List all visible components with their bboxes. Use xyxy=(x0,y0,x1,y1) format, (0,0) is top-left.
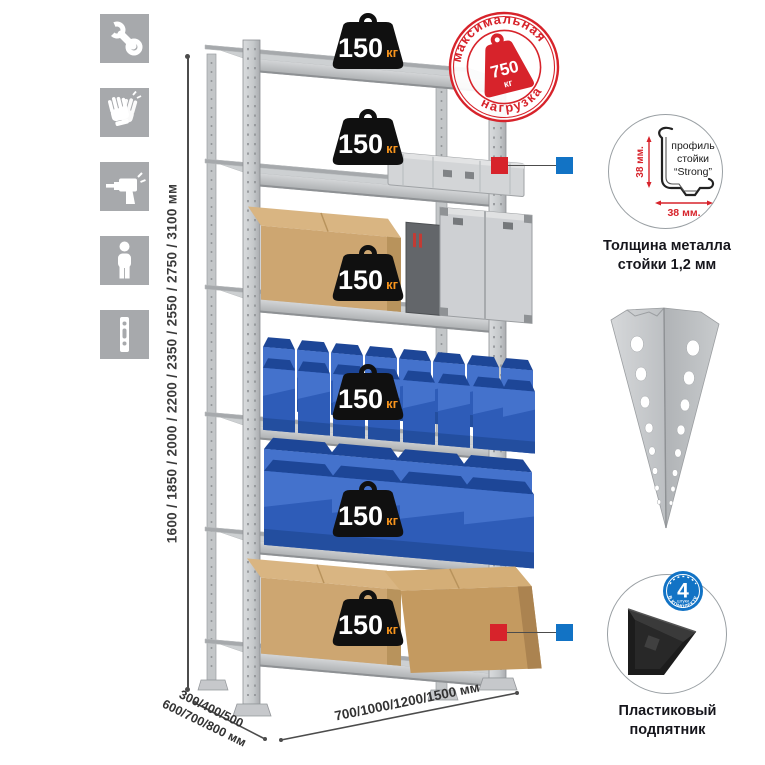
aluminium-case-standing xyxy=(440,207,532,323)
profile-label-line3: “Strong” xyxy=(674,166,712,178)
shelf5-load-badge: 150кг xyxy=(316,481,420,539)
rack-post-icon xyxy=(100,310,149,359)
profile-dim-vertical: 38 мм. xyxy=(635,146,646,178)
badge-value: 150 xyxy=(338,386,383,413)
shelf3-load-badge: 150кг xyxy=(316,245,420,303)
foot-caption-line1: Пластиковый xyxy=(600,702,735,721)
shelf4-load-badge: 150кг xyxy=(316,364,420,422)
quantity-badge-sub: штуки xyxy=(677,599,689,604)
badge-value: 150 xyxy=(338,503,383,530)
foot-caption-line2: подпятник xyxy=(600,721,735,740)
quantity-badge: 4 штуки В КОМПЛЕКТЕ xyxy=(662,570,704,612)
badge-value: 150 xyxy=(338,131,383,158)
drill-icon xyxy=(100,162,149,211)
badge-unit: кг xyxy=(386,623,398,636)
height-dimension-label: 1600 / 1850 / 2000 / 2200 / 2350 / 2550 … xyxy=(165,39,180,689)
profile-label-line1: профиль xyxy=(671,140,715,152)
shelf2-load-badge: 150кг xyxy=(316,109,420,167)
post-profile-detail-circle: 38 мм. 38 мм. профиль стойки “Strong” xyxy=(608,114,723,229)
perforated-angle-post-image xyxy=(597,300,732,538)
badge-unit: кг xyxy=(386,397,398,410)
profile-callout-source-marker xyxy=(491,157,508,174)
max-load-stamp: максимальная нагрузка 750 кг xyxy=(445,8,563,126)
badge-unit: кг xyxy=(386,278,398,291)
product-infographic-page: { "sidebar": { "icons": [ {"name": "wren… xyxy=(0,0,765,765)
profile-caption-line1: Толщина металла xyxy=(592,237,742,256)
foot-callout-source-marker xyxy=(490,624,507,641)
foot-callout-target-marker xyxy=(556,624,573,641)
badge-unit: кг xyxy=(386,142,398,155)
shelf1-load-badge: 150кг xyxy=(316,13,420,71)
wrench-icon xyxy=(100,14,149,63)
profile-dim-horizontal: 38 мм. xyxy=(667,207,700,219)
profile-label-line2: стойки xyxy=(677,153,709,165)
profile-caption: Толщина металла стойки 1,2 мм xyxy=(592,237,742,275)
badge-value: 150 xyxy=(338,612,383,639)
profile-caption-line2: стойки 1,2 мм xyxy=(592,256,742,275)
profile-callout-target-marker xyxy=(556,157,573,174)
badge-value: 150 xyxy=(338,267,383,294)
badge-unit: кг xyxy=(386,46,398,59)
shelf6-load-badge: 150кг xyxy=(316,590,420,648)
badge-unit: кг xyxy=(386,514,398,527)
person-icon xyxy=(100,236,149,285)
foot-caption: Пластиковый подпятник xyxy=(600,702,735,740)
work-gloves-icon xyxy=(100,88,149,137)
badge-value: 150 xyxy=(338,35,383,62)
